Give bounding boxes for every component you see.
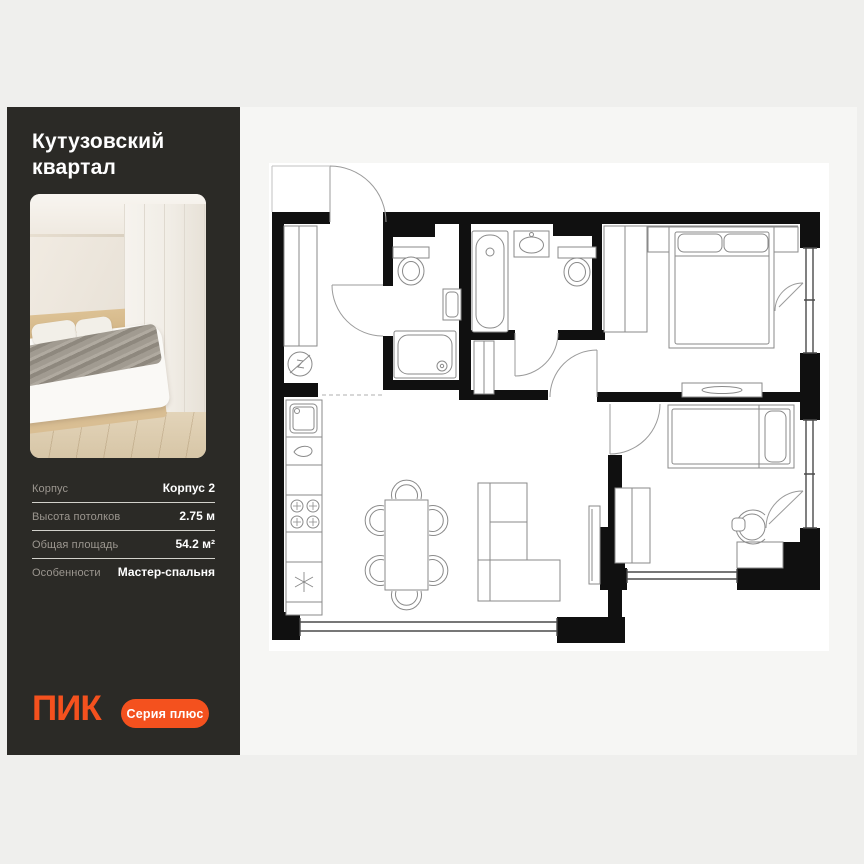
spec-label: Корпус <box>32 483 68 495</box>
bathroom-toilet <box>558 247 596 286</box>
master-bed <box>669 227 774 348</box>
desk <box>737 542 783 568</box>
pillow <box>724 234 768 252</box>
fixtures <box>284 226 798 615</box>
floor-plan-area <box>240 107 857 755</box>
single-bed <box>668 405 794 468</box>
spec-label: Высота потолков <box>32 511 120 523</box>
hall-closet <box>284 226 317 346</box>
spec-row-total-area: Общая площадь 54.2 м² <box>32 531 215 559</box>
series-plus-badge: Серия плюс <box>121 699 209 728</box>
spec-row-ceiling-height: Высота потолков 2.75 м <box>32 503 215 531</box>
listing-card[interactable]: Кутузовский квартал Корпус Корпус 2 Высо <box>7 107 857 755</box>
bathroom-door <box>515 333 558 376</box>
tv-panel <box>589 506 600 584</box>
pillow <box>678 234 722 252</box>
dining-table <box>385 500 428 590</box>
spec-value: Корпус 2 <box>163 481 215 495</box>
kitchen-counter <box>286 400 322 615</box>
spec-value: 54.2 м² <box>175 537 215 551</box>
spec-label: Особенности <box>32 567 101 579</box>
wc-door <box>332 285 383 336</box>
dresser <box>682 383 762 397</box>
spec-value: Мастер-спальня <box>118 565 215 579</box>
master-wardrobe <box>604 226 647 332</box>
master-balcony-door <box>775 283 803 311</box>
spec-value: 2.75 м <box>179 509 215 523</box>
sidebar: Кутузовский квартал Корпус Корпус 2 Высо <box>7 107 240 755</box>
entrance-door <box>330 166 386 222</box>
kitchen-sink <box>290 404 317 433</box>
project-title: Кутузовский квартал <box>32 129 192 181</box>
photo-cove-light <box>30 234 139 237</box>
pik-logo: ПИК <box>32 690 101 728</box>
bedroom-balcony-door <box>766 491 803 528</box>
nightstand-left <box>648 227 670 252</box>
bathtub <box>472 231 508 332</box>
page: { "page": { "background": "#EFEFED" }, "… <box>0 0 864 864</box>
spec-row-building: Корпус Корпус 2 <box>32 475 215 503</box>
bathroom-sink <box>514 231 549 257</box>
entry-landing <box>272 166 330 212</box>
spec-row-features: Особенности Мастер-спальня <box>32 559 215 586</box>
wc-toilet <box>393 247 429 285</box>
bedroom-door <box>610 404 660 454</box>
spec-label: Общая площадь <box>32 539 118 551</box>
listing-photo <box>30 194 206 458</box>
corner-sofa <box>478 483 560 601</box>
floor-plan <box>240 107 857 755</box>
nightstand-right <box>774 227 798 252</box>
shower-tray <box>394 331 456 378</box>
desk-chair <box>732 510 765 544</box>
electrical-panel-icon <box>288 352 312 376</box>
bedroom-wardrobe <box>615 488 650 563</box>
living-room-door <box>550 350 597 397</box>
wc-sink <box>443 289 461 320</box>
pillow <box>765 411 786 462</box>
spec-table: Корпус Корпус 2 Высота потолков 2.75 м О… <box>32 475 215 586</box>
corridor-niche <box>474 341 494 394</box>
